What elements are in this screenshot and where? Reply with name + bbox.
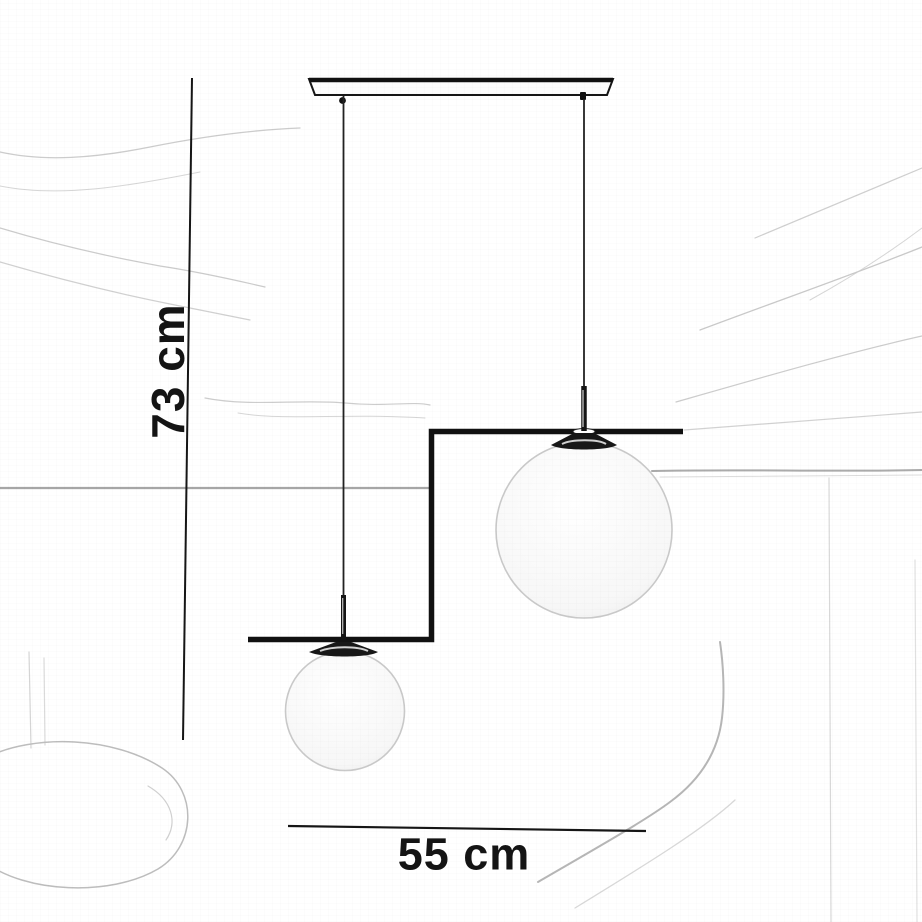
left-cord-hook [339, 97, 346, 104]
background-sketch [0, 128, 922, 922]
left-glass-globe [286, 652, 405, 771]
left-shade-holder [309, 642, 378, 657]
ceiling-mount-bar [309, 79, 613, 104]
right-cord-hook [580, 92, 586, 100]
right-suspension-cord [583, 99, 584, 431]
diagram-canvas: 73 cm 55 cm [0, 0, 922, 922]
left-suspension-cord [343, 96, 344, 640]
height-dimension-label: 73 cm [145, 303, 191, 438]
width-dimension-label: 55 cm [398, 832, 531, 877]
right-glass-globe [496, 442, 672, 618]
pendant-lamp-dimension-drawing [0, 0, 922, 922]
